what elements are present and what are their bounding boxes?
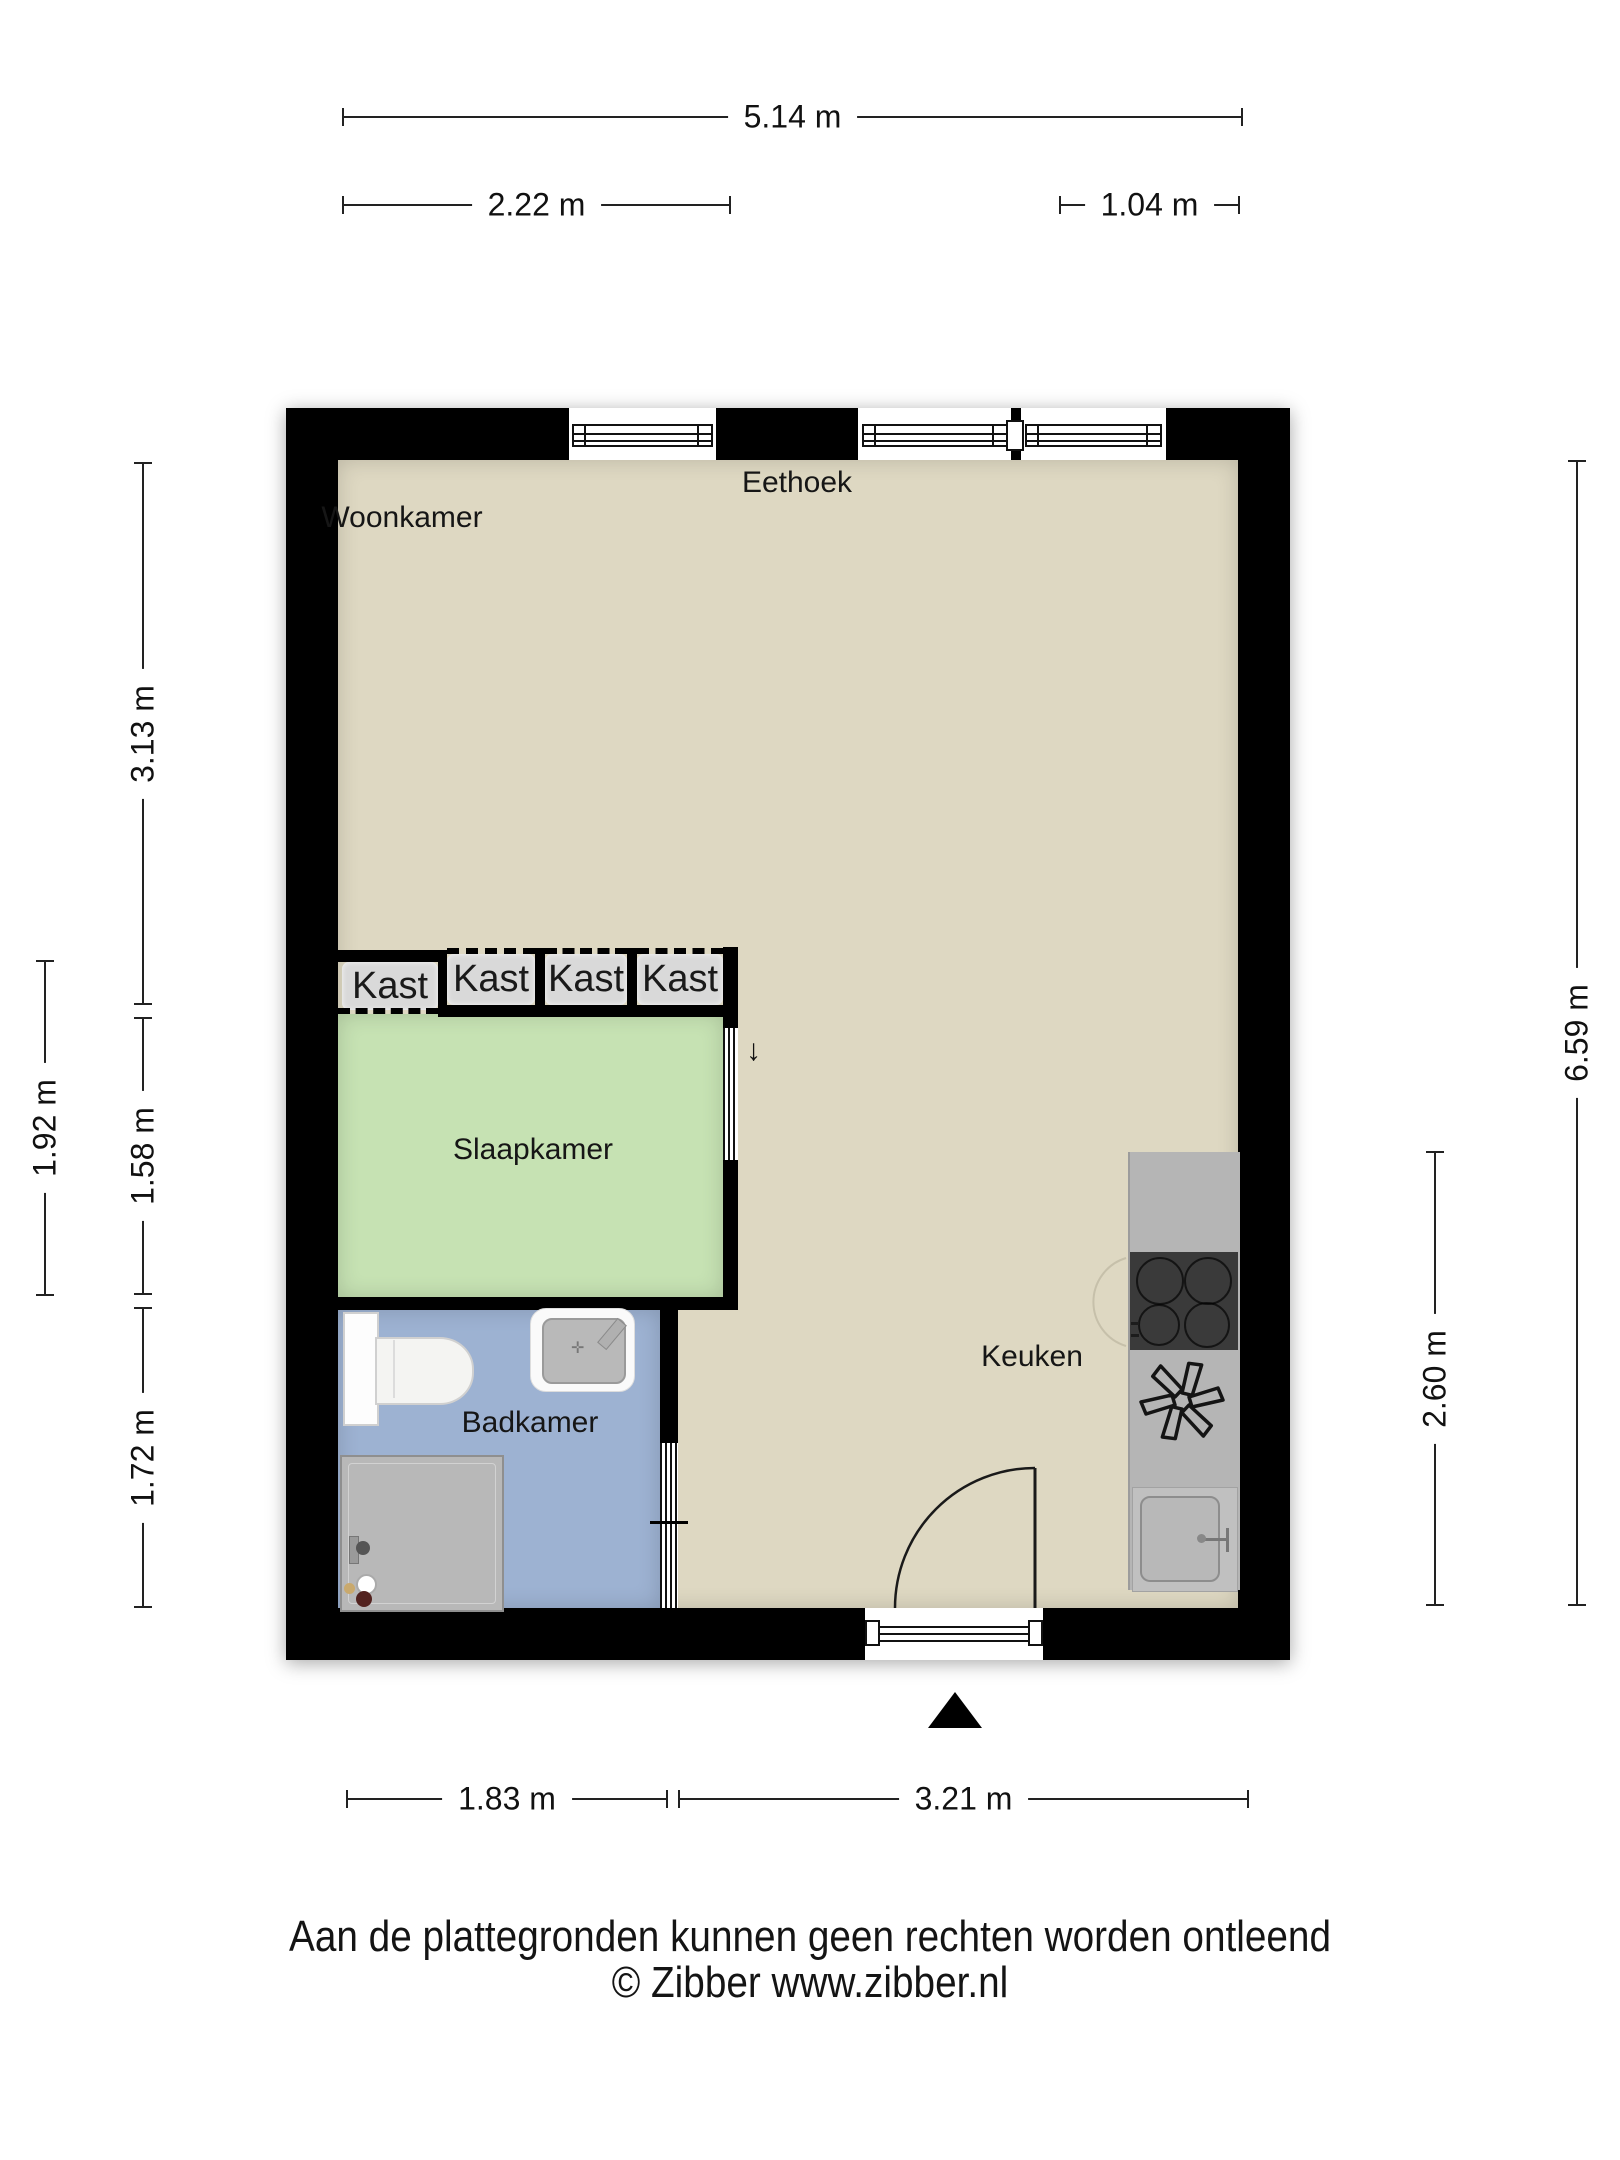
bathroom-sink-drain-icon: ✛ <box>571 1338 584 1358</box>
wall-closet1-right <box>438 950 447 1010</box>
dim-tick <box>1426 1604 1444 1606</box>
bedroom-door-arrow-icon: ↓ <box>746 1034 761 1068</box>
dim-bottom-right-label: 3.21 m <box>899 1781 1029 1818</box>
copyright-text: © Zibber www.zibber.nl <box>97 1958 1523 2008</box>
dim-tick <box>1059 196 1061 214</box>
shower-mixer-knob <box>356 1541 370 1555</box>
closet-2-label: Kast <box>453 958 529 1001</box>
burner-icon <box>1184 1302 1230 1348</box>
kitchen-faucet-handle <box>1226 1528 1229 1552</box>
entrance-jamb-right <box>1028 1620 1043 1646</box>
closet-4-label: Kast <box>642 958 718 1001</box>
disclaimer-text: Aan de plattegronden kunnen geen rechten… <box>97 1912 1523 1962</box>
toilet-tank <box>343 1312 379 1426</box>
dim-tick <box>346 1790 348 1808</box>
room-label-slaapkamer: Slaapkamer <box>453 1133 613 1167</box>
kitchen-faucet-icon <box>1197 1534 1206 1543</box>
wall-closet-separator-1 <box>535 948 545 1008</box>
dim-tick <box>1568 460 1586 462</box>
dim-top-right-label: 1.04 m <box>1085 187 1215 224</box>
wall-bedroom-top <box>438 1005 738 1017</box>
entrance-threshold <box>880 1626 1028 1642</box>
entrance-arrow-icon <box>928 1692 982 1728</box>
wall-bedroom-bottom <box>338 1297 738 1310</box>
dim-tick <box>666 1790 668 1808</box>
dim-right-kitchen-label: 2.60 m <box>1417 1314 1454 1444</box>
dim-tick <box>1426 1151 1444 1153</box>
dim-tick <box>1241 108 1243 126</box>
entrance-jamb-left <box>865 1620 880 1646</box>
dim-tick <box>342 196 344 214</box>
dim-tick <box>729 196 731 214</box>
toilet-bowl <box>375 1337 474 1405</box>
bedroom-sliding-door <box>723 1028 738 1160</box>
room-label-eethoek: Eethoek <box>742 466 852 500</box>
burner-icon <box>1184 1257 1232 1305</box>
closet-2: Kast <box>447 954 535 1005</box>
wall-closet-separator-2 <box>627 948 637 1008</box>
closet-4: Kast <box>637 954 723 1005</box>
closet-1-dashed-front <box>338 1008 438 1014</box>
closet-3-label: Kast <box>548 958 624 1001</box>
dim-tick <box>36 960 54 962</box>
cooktop <box>1130 1252 1238 1350</box>
dim-left-bedroom-outer-label: 1.92 m <box>27 1063 64 1193</box>
closet-4-dashed-front <box>637 948 723 954</box>
shower-drain-dark <box>356 1591 372 1607</box>
wall-bedroom-right-lower <box>723 1160 738 1310</box>
room-label-woonkamer: Woonkamer <box>321 501 482 535</box>
wall-bathroom-right-upper <box>660 1310 678 1443</box>
closet-2-dashed-front <box>447 948 535 954</box>
burner-icon <box>1138 1304 1180 1346</box>
window-b-glazing <box>862 424 1008 447</box>
dim-left-bedroom-label: 1.58 m <box>125 1091 162 1221</box>
wall-closet1-top <box>338 950 447 962</box>
dim-tick <box>134 1307 152 1309</box>
dim-tick <box>1247 1790 1249 1808</box>
bathroom-door-handle-mark <box>650 1521 688 1524</box>
dim-bottom-left-label: 1.83 m <box>442 1781 572 1818</box>
dim-tick <box>134 1606 152 1608</box>
window-c-glazing <box>1025 424 1162 447</box>
dim-tick <box>134 1017 152 1019</box>
window-a-glazing <box>572 424 713 447</box>
dim-tick <box>1568 1604 1586 1606</box>
room-label-badkamer: Badkamer <box>462 1406 599 1440</box>
wall-bedroom-right-upper <box>723 947 738 1028</box>
dim-top-left-label: 2.22 m <box>472 187 602 224</box>
dim-tick <box>134 1293 152 1295</box>
floorplan-page: Kast Kast Kast Kast <box>0 0 1620 2160</box>
dim-tick <box>134 1003 152 1005</box>
closet-3: Kast <box>545 954 627 1005</box>
dim-top-total-label: 5.14 m <box>728 99 858 136</box>
closet-3-dashed-front <box>545 948 627 954</box>
dim-tick <box>678 1790 680 1808</box>
cooktop-control-mark <box>1131 1322 1139 1325</box>
dim-tick <box>36 1294 54 1296</box>
closet-1-label: Kast <box>352 965 428 1008</box>
dim-right-total-label: 6.59 m <box>1559 968 1596 1098</box>
dim-left-bathroom-label: 1.72 m <box>125 1393 162 1523</box>
shower-fitting-tan <box>344 1583 355 1594</box>
dim-left-living-label: 3.13 m <box>125 669 162 799</box>
burner-icon <box>1136 1257 1184 1305</box>
dim-tick <box>134 462 152 464</box>
room-label-keuken: Keuken <box>981 1340 1083 1374</box>
closet-1: Kast <box>342 962 438 1010</box>
window-mullion <box>1006 420 1024 451</box>
cooktop-control-mark <box>1131 1334 1139 1337</box>
dim-tick <box>1238 196 1240 214</box>
dim-tick <box>342 108 344 126</box>
bathroom-sliding-door <box>660 1443 678 1608</box>
toilet-seat-line <box>393 1340 395 1398</box>
